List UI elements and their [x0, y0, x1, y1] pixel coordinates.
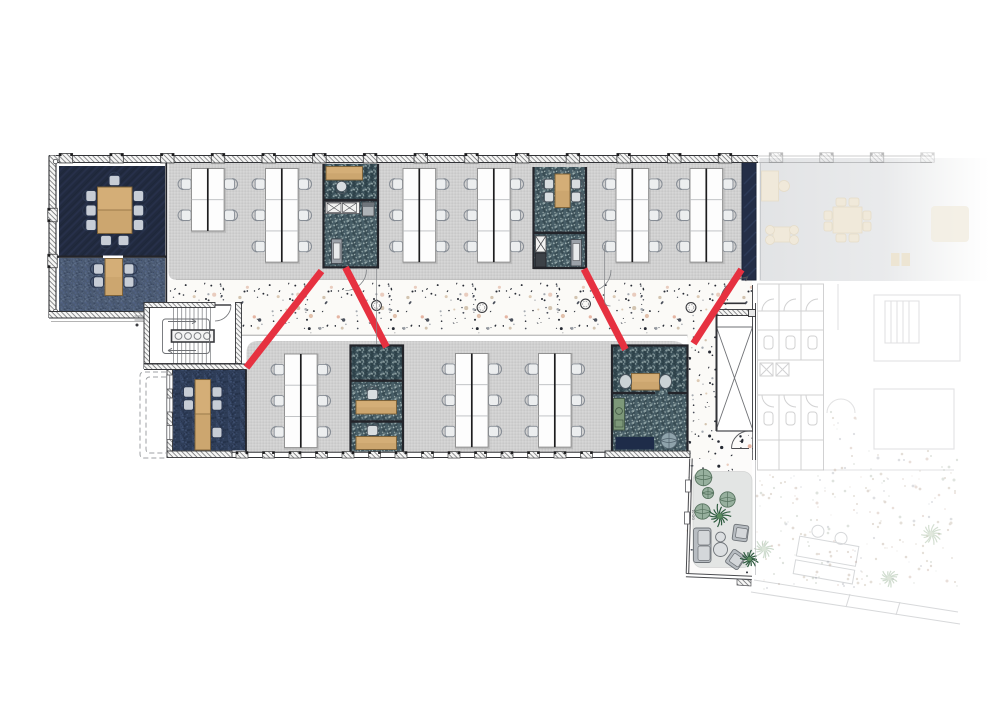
svg-text:GO.01: GO.01 — [692, 509, 696, 520]
